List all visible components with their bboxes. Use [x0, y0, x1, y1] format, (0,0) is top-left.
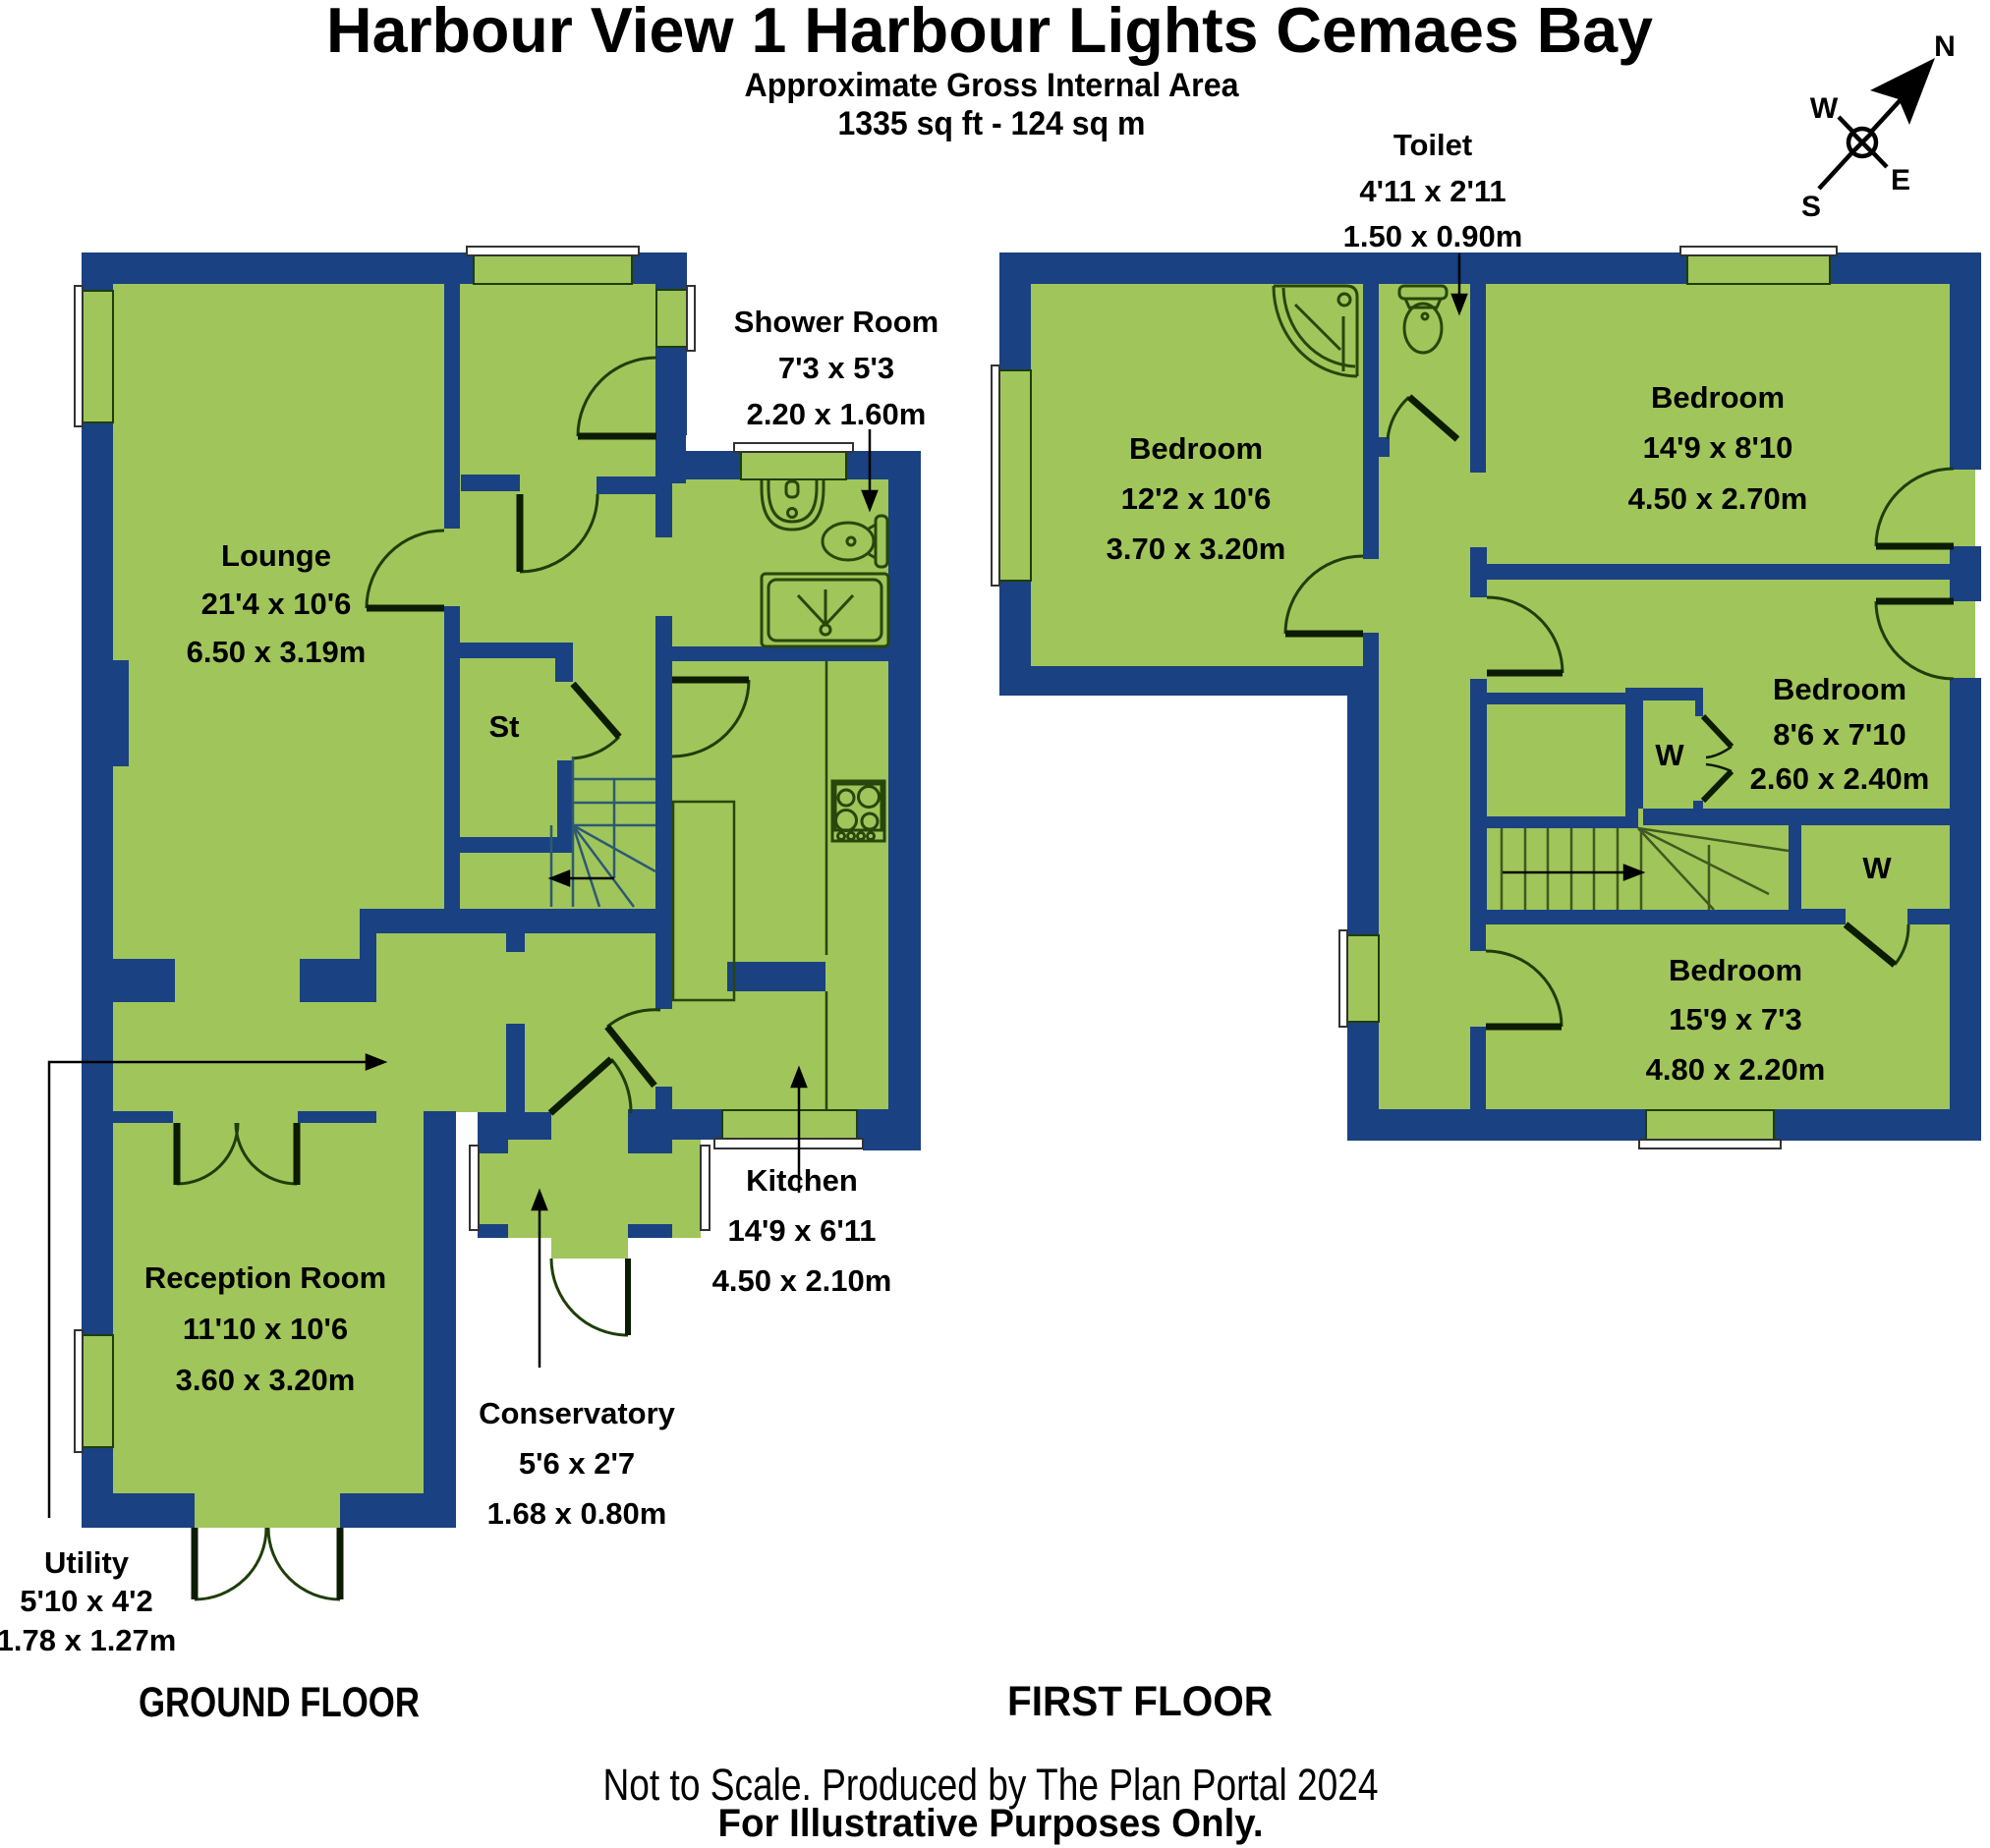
svg-text:4'11 x 2'11: 4'11 x 2'11: [1359, 174, 1506, 208]
svg-text:12'2 x 10'6: 12'2 x 10'6: [1121, 481, 1272, 516]
svg-text:Utility: Utility: [44, 1545, 130, 1580]
svg-text:Bedroom: Bedroom: [1669, 953, 1802, 987]
svg-text:Reception Room: Reception Room: [144, 1260, 386, 1295]
svg-text:2.20 x 1.60m: 2.20 x 1.60m: [747, 397, 927, 431]
svg-text:4.80 x 2.20m: 4.80 x 2.20m: [1646, 1052, 1826, 1087]
svg-text:Bedroom: Bedroom: [1773, 672, 1906, 706]
svg-text:Conservatory: Conservatory: [479, 1396, 676, 1430]
svg-text:S: S: [1801, 191, 1821, 223]
svg-text:21'4 x 10'6: 21'4 x 10'6: [201, 587, 352, 621]
svg-text:11'10 x 10'6: 11'10 x 10'6: [183, 1312, 348, 1346]
svg-text:Bedroom: Bedroom: [1651, 380, 1785, 415]
svg-text:6.50 x 3.19m: 6.50 x 3.19m: [187, 635, 367, 669]
svg-text:Harbour View 1 Harbour Lights: Harbour View 1 Harbour Lights Cemaes Bay: [326, 0, 1653, 66]
svg-text:1.50 x 0.90m: 1.50 x 0.90m: [1343, 219, 1523, 253]
svg-text:1.68 x 0.80m: 1.68 x 0.80m: [487, 1496, 667, 1531]
svg-text:5'10 x 4'2: 5'10 x 4'2: [20, 1584, 152, 1618]
svg-text:E: E: [1891, 164, 1910, 196]
svg-text:4.50 x 2.70m: 4.50 x 2.70m: [1628, 481, 1808, 516]
svg-text:Shower Room: Shower Room: [734, 305, 938, 339]
svg-text:4.50 x 2.10m: 4.50 x 2.10m: [712, 1263, 892, 1298]
svg-text:2.60 x 2.40m: 2.60 x 2.40m: [1750, 761, 1930, 796]
svg-text:14'9 x 6'11: 14'9 x 6'11: [728, 1213, 877, 1248]
svg-text:Approximate Gross Internal Are: Approximate Gross Internal Area: [745, 67, 1240, 104]
svg-text:GROUND FLOOR: GROUND FLOOR: [139, 1679, 420, 1726]
svg-text:1335 sq ft - 124 sq m: 1335 sq ft - 124 sq m: [838, 105, 1146, 142]
svg-text:15'9 x 7'3: 15'9 x 7'3: [1669, 1002, 1801, 1036]
svg-text:Bedroom: Bedroom: [1129, 431, 1263, 466]
svg-text:14'9 x 8'10: 14'9 x 8'10: [1643, 430, 1793, 465]
svg-text:5'6 x 2'7: 5'6 x 2'7: [519, 1446, 635, 1481]
svg-text:Toilet: Toilet: [1393, 128, 1472, 162]
svg-text:3.70 x 3.20m: 3.70 x 3.20m: [1107, 532, 1286, 566]
svg-text:St: St: [489, 709, 520, 744]
svg-text:W: W: [1655, 738, 1684, 772]
svg-text:Lounge: Lounge: [221, 538, 331, 573]
svg-text:FIRST FLOOR: FIRST FLOOR: [1007, 1678, 1273, 1725]
svg-text:For Illustrative Purposes Only: For Illustrative Purposes Only.: [718, 1802, 1264, 1845]
svg-text:3.60 x 3.20m: 3.60 x 3.20m: [176, 1363, 356, 1397]
svg-text:1.78 x 1.27m: 1.78 x 1.27m: [0, 1623, 176, 1657]
svg-text:7'3 x 5'3: 7'3 x 5'3: [778, 351, 894, 385]
svg-text:Kitchen: Kitchen: [746, 1163, 858, 1198]
svg-text:W: W: [1862, 851, 1892, 885]
svg-text:8'6 x 7'10: 8'6 x 7'10: [1773, 717, 1905, 752]
svg-text:N: N: [1934, 30, 1956, 63]
svg-text:W: W: [1810, 92, 1839, 125]
